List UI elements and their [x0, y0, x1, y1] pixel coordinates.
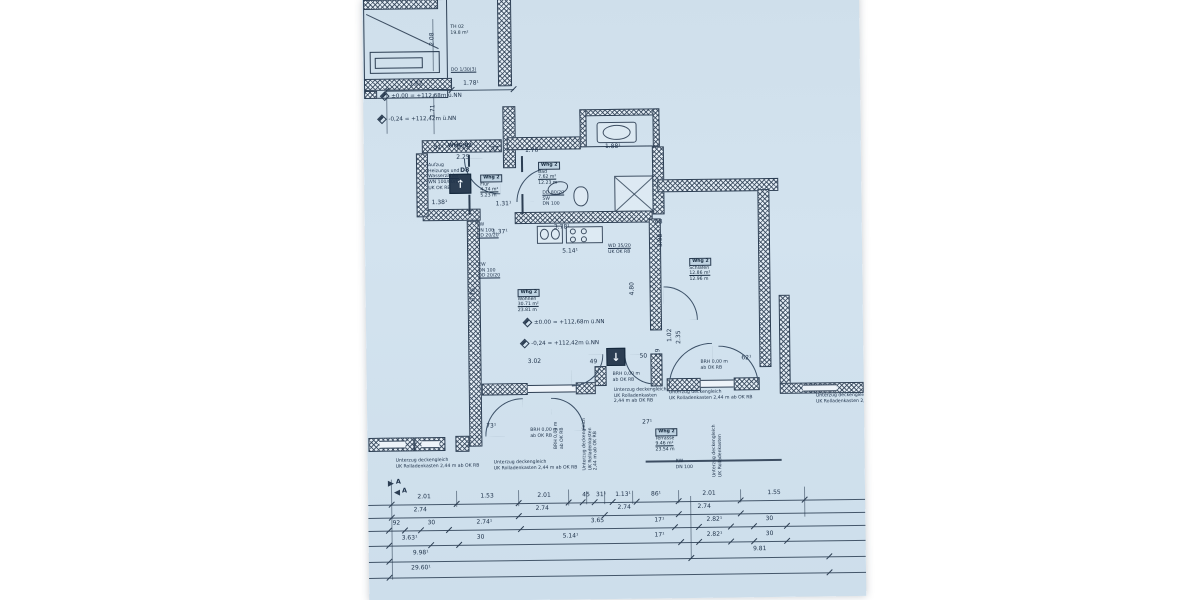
dimension-label: 2.01 — [417, 494, 430, 500]
room-stamp-header: Whg 2 — [655, 428, 678, 436]
level-mark: -0,24 = +112,42m ü.NN — [521, 339, 599, 347]
dimension-label: 86¹ — [651, 491, 661, 497]
dimension-label: 87 — [491, 146, 499, 152]
annotation-note: Unterzug deckengleichUK Rolladenkasten 2… — [669, 389, 753, 401]
annotation-note: Unterzug deckengleichUK Rolladenkasten2,… — [582, 418, 600, 471]
wall-segment — [364, 78, 452, 91]
dimension-label: 3.63¹ — [402, 535, 418, 541]
dimension-label: 1.02 — [667, 329, 673, 342]
dimension-label: 2.74¹ — [476, 519, 492, 525]
room-stamp: Whg 2Flur4.74 m²5.23 m — [480, 174, 503, 199]
wall-segment — [515, 210, 653, 224]
room-stamp-line: 23.54 m — [655, 447, 677, 453]
dimension-label: 62¹ — [741, 355, 751, 361]
wall-segment — [779, 295, 791, 393]
annotation-note: BRH 0,00 mab OK RB — [700, 360, 728, 372]
dimension-label: 1.13¹ — [615, 492, 631, 498]
dimension-label: 68 — [655, 219, 663, 225]
wall-segment — [482, 383, 528, 396]
annotation-note: EWDN 100DD 20/20 — [478, 262, 500, 279]
room-stamp-line: 12.96 m — [689, 277, 711, 283]
dimension-label: 2.74 — [414, 507, 427, 513]
annotation-note: Unterzug deckengleichUK Rolladenkasten — [712, 424, 724, 477]
level-diamond-icon — [380, 91, 390, 101]
annotation-note: RWDN 100 — [676, 459, 693, 471]
window — [803, 384, 837, 391]
annotation-note: Unterzug deckengleichUK Rolladenkasten 2… — [396, 458, 480, 470]
dimension-label: 1.76¹ — [525, 148, 541, 154]
dimension-line — [369, 556, 866, 563]
toilet — [573, 186, 588, 206]
dimension-label: 30 — [477, 535, 485, 541]
blueprint-sheet: ↑ ↓ WHG 02 D8 A A Whg 2Flur4.74 m²5.23 m… — [362, 0, 866, 600]
dimension-label: 73¹ — [486, 423, 496, 429]
annotation-line: UK Rolladenkasten 2,44 m ab OK RB — [396, 463, 480, 470]
level-text: ±0.00 = +112,68m ü.NN — [534, 319, 605, 326]
annotation-line: BRH 0,00 m — [554, 422, 560, 449]
dimension-line — [368, 525, 865, 532]
dimension-label: 3.78¹ — [554, 224, 570, 230]
dimension-label: 9.81 — [753, 546, 766, 552]
wall-segment — [497, 0, 512, 86]
dimension-label: 1.15 — [456, 145, 469, 151]
dimension-label: 4.80 — [629, 282, 635, 295]
dimension-label: 19 — [655, 349, 661, 357]
level-mark: -0,24 = +112,42m ü.NN — [378, 115, 456, 123]
level-text: -0,24 = +112,42m ü.NN — [388, 116, 456, 123]
annotation-line: UK Rolladenkasten 2,44 — [816, 399, 866, 405]
dimension-tick — [510, 86, 516, 92]
dimension-label: 2.74 — [536, 506, 549, 512]
dimension-label: 1.53 — [480, 493, 493, 499]
stove-burner-icon — [570, 236, 576, 242]
wall-segment — [579, 109, 586, 147]
annotation-line: DD 20/20 — [478, 274, 500, 280]
window — [528, 384, 576, 393]
room-stamp: Whg 2Schlafen12.86 m²12.96 m — [689, 258, 712, 283]
annotation-line: UK Rolladenkasten 2,44 m ab OK RB — [669, 395, 753, 402]
annotation-note: AufzugHeizungs undWasserzählerWN 100/80/… — [428, 163, 461, 192]
room-stamp-line: 12.23 m — [538, 181, 560, 187]
dimension-label: 1.78¹ — [463, 81, 479, 87]
wall-segment — [416, 153, 429, 217]
dimension-label: 30 — [428, 520, 436, 526]
dimension-label: 2.35 — [676, 330, 682, 343]
level-diamond-icon — [523, 318, 533, 328]
page-background: ↑ ↓ WHG 02 D8 A A Whg 2Flur4.74 m²5.23 m… — [0, 0, 1200, 600]
window — [379, 441, 405, 449]
dimension-label: 1.88¹ — [605, 144, 621, 150]
annotation-line: UK OK RB — [428, 186, 461, 192]
dimension-label: 5.14¹ — [563, 533, 579, 539]
dimension-label: 92 — [393, 521, 401, 527]
annotation-line: ab OK RB — [559, 422, 565, 449]
door-swing-arc — [664, 286, 698, 320]
annotation-line: DD 80/20 — [542, 191, 564, 197]
annotation-line: 2,44 m ab OK RB — [614, 399, 667, 405]
level-mark: ±0.00 = +112,68m ü.NN — [524, 318, 605, 326]
annotation-note: Unterzug deckengleichUK Rolladenkasten 2… — [494, 459, 578, 471]
room-stamp-header: Whg 2 — [480, 174, 503, 182]
arrow-down-glyph: ↓ — [611, 350, 620, 363]
room-stamp-line: 5.23 m — [480, 193, 502, 199]
window — [421, 440, 439, 448]
room-stamp: Whg 2Bad7.62 m²12.23 m — [538, 162, 561, 187]
dimension-label: 3.98 — [658, 234, 664, 247]
stove-burner-icon — [581, 236, 587, 242]
level-text: -0,24 = +112,42m ü.NN — [531, 340, 599, 347]
annotation-line: DN 100 — [676, 465, 693, 471]
dimension-label: 2.74 — [618, 505, 631, 511]
annotation-line: ab OK RB — [700, 365, 727, 371]
dimension-line — [369, 540, 866, 547]
dimension-label: 1.82 — [409, 81, 422, 87]
dimension-label: 1.55 — [767, 490, 780, 496]
wall-segment — [467, 221, 483, 447]
annotation-line: UK Rolladenkasten — [717, 424, 723, 477]
wall-segment — [507, 136, 581, 150]
dimension-label: 31¹ — [596, 492, 606, 498]
extension-line — [804, 487, 805, 517]
stair-landing-inner — [375, 57, 423, 69]
dimension-line — [369, 572, 866, 579]
annotation-note: BRH 0,00 mab OK RB — [554, 422, 566, 450]
annotation-note: DD 80/20SWDN 100 — [542, 191, 564, 208]
section-marker-icon — [394, 490, 400, 496]
level-diamond-icon — [377, 114, 387, 124]
entrance-arrow-down-icon: ↓ — [606, 348, 625, 366]
stove-burner-icon — [581, 228, 587, 234]
annotation-note: WD 35/20UK OK RB — [608, 244, 631, 256]
dimension-label: 17¹ — [654, 517, 664, 523]
dimension-label: 1.71 — [430, 104, 436, 117]
room-stamp-line: 19.8 m² — [450, 30, 468, 36]
dimension-label: 2.01 — [702, 491, 715, 497]
room-stamp-line: 23.81 m — [518, 308, 540, 314]
annotation-line: UK OK RB — [608, 249, 631, 255]
room-stamp: Whg 2Terrasse9.46 m²23.54 m — [655, 428, 678, 453]
wall-pier — [455, 436, 469, 452]
extension-line — [632, 491, 633, 504]
wall-segment — [363, 0, 438, 10]
dimension-label: 51¹ — [434, 145, 444, 151]
dimension-label: 2.01 — [537, 493, 550, 499]
annotation-note: Unterzug deckengleichUK Rolladenkasten2,… — [614, 387, 667, 405]
room-stamp: TH 0219.8 m² — [450, 25, 468, 37]
room-stamp: Whg 2Wohnen30.71 m²23.81 m — [518, 289, 541, 314]
annotation-line: DO 1/30(3) — [451, 68, 477, 74]
dimension-label: 1.31¹ — [496, 201, 512, 207]
annotation-note: DO 1/30(3) — [451, 68, 477, 74]
wall-segment — [364, 91, 377, 99]
room-stamp-header: Whg 2 — [538, 162, 561, 170]
dimension-label: 1.37¹ — [492, 229, 508, 235]
dimension-label: 2.25 — [456, 155, 469, 161]
dimension-label: 30 — [766, 531, 774, 537]
section-marker-label: A — [402, 486, 407, 494]
dimension-label: 29.60¹ — [411, 565, 431, 571]
room-stamp-header: Whg 2 — [689, 258, 712, 266]
dimension-label: 2.08 — [429, 32, 435, 45]
annotation-note: Unterzug deckengleichUK Rolladenkasten 2… — [816, 393, 866, 405]
level-mark: ±0.00 = +112,68m ü.NN — [381, 92, 462, 100]
wall-segment — [423, 209, 481, 222]
dimension-label: 6.76 — [471, 288, 477, 301]
wall-segment — [757, 189, 771, 367]
dimension-label: 2.82¹ — [706, 517, 722, 523]
level-text: ±0.00 = +112,68m ü.NN — [391, 93, 462, 100]
dimension-label: 27¹ — [642, 419, 652, 425]
dimension-label: 2.82¹ — [707, 532, 723, 538]
annotation-line: 2,44 m ab OK RB — [593, 418, 599, 471]
dimension-label: 17¹ — [655, 532, 665, 538]
dimension-label: 49 — [590, 359, 598, 365]
dimension-label: 45 — [582, 492, 590, 498]
annotation-line: ab OK RB — [613, 377, 640, 383]
dimension-label: 9.98¹ — [413, 550, 429, 556]
dimension-line — [368, 512, 865, 519]
dimension-label: 3.65 — [591, 518, 604, 524]
door-swing-arc — [485, 398, 523, 436]
section-marker-label: A — [396, 478, 401, 486]
dimension-label: 5.14¹ — [562, 248, 578, 254]
partition-line — [468, 195, 470, 215]
dimension-label: 30 — [766, 516, 774, 522]
stove-burner-icon — [570, 228, 576, 234]
dimension-label: 3.02 — [528, 359, 541, 365]
door-number-label: D8 — [460, 167, 469, 175]
sink-bowl-icon — [540, 229, 549, 240]
wall-segment — [652, 108, 659, 146]
annotation-line: DN 100 — [542, 202, 564, 208]
dimension-label: 1.38¹ — [432, 200, 448, 206]
partition-line — [521, 156, 523, 172]
dimension-label: 50 — [640, 354, 648, 360]
dimension-label: 2.74 — [698, 504, 711, 510]
room-stamp-header: Whg 2 — [518, 289, 541, 297]
annotation-line: UK Rolladenkasten 2,44 m ab OK RB — [494, 465, 578, 472]
level-diamond-icon — [520, 339, 530, 349]
wall-segment — [579, 108, 659, 116]
annotation-note: BRH 0,00 mab OK RB — [613, 372, 641, 384]
